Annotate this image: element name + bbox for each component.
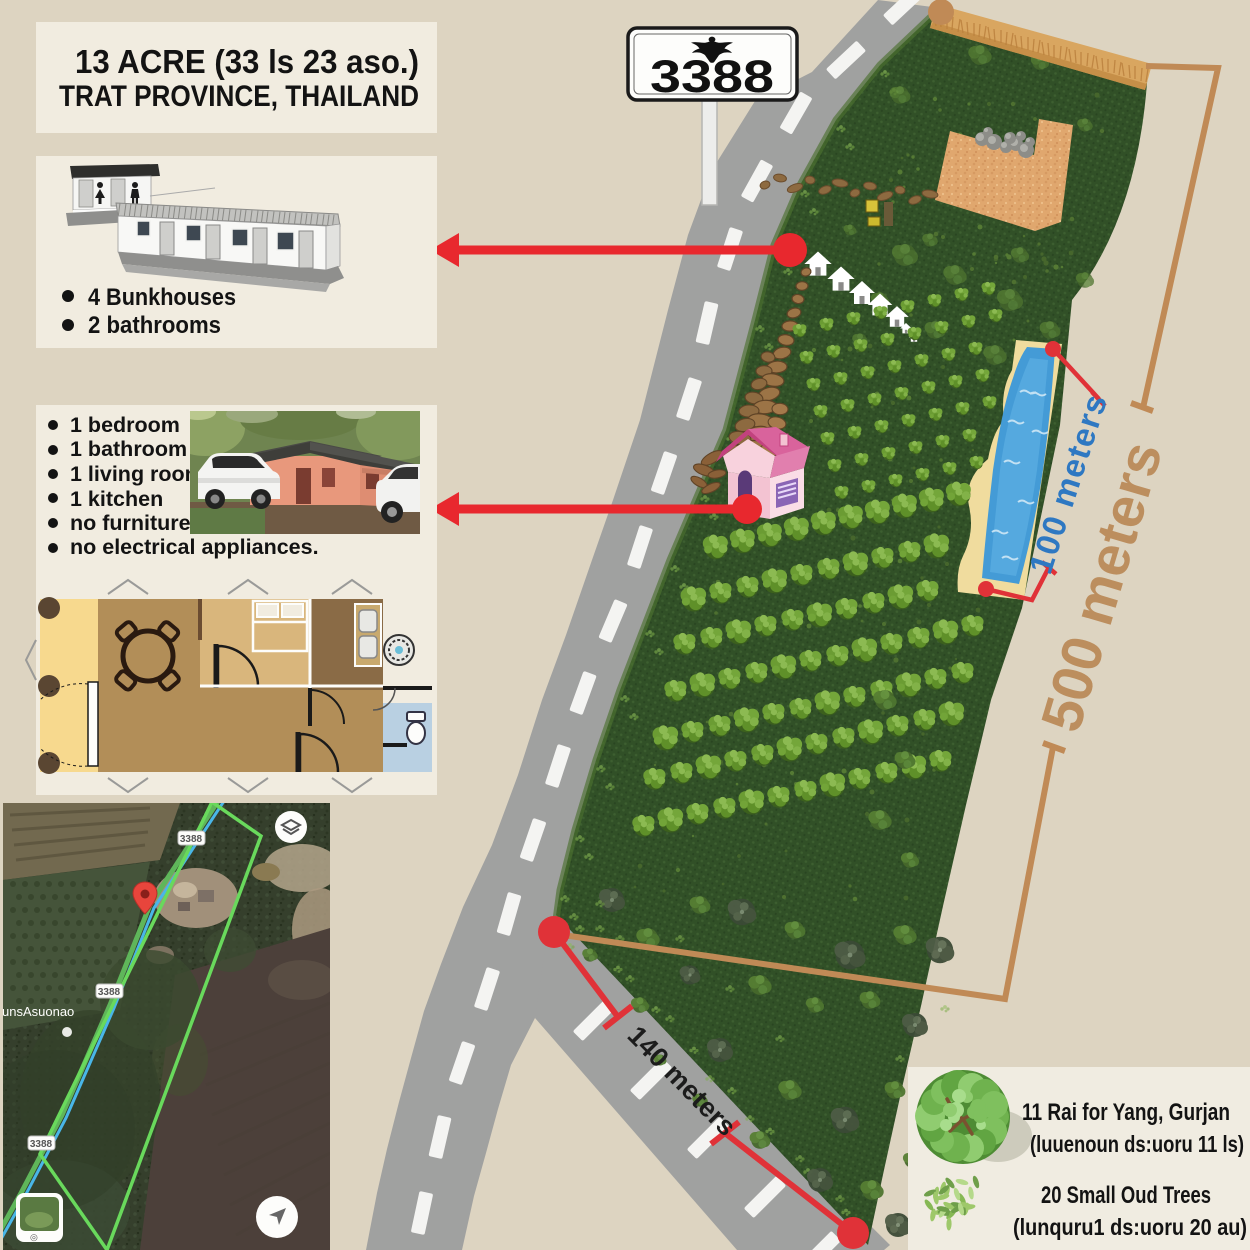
svg-text:no furniture: no furniture	[70, 511, 191, 535]
svg-text:3388: 3388	[30, 1139, 53, 1150]
svg-text:2 bathrooms: 2 bathrooms	[88, 312, 221, 339]
svg-text:4 Bunkhouses: 4 Bunkhouses	[88, 284, 236, 311]
svg-text:no electrical appliances.: no electrical appliances.	[70, 535, 319, 559]
svg-text:◎: ◎	[30, 1232, 38, 1242]
svg-text:1 bathroom: 1 bathroom	[70, 437, 187, 461]
svg-text:11 Rai for Yang, Gurjan: 11 Rai for Yang, Gurjan	[1022, 1099, 1230, 1126]
svg-text:1 living room: 1 living room	[70, 462, 204, 486]
svg-text:(luuenoun ds:uoru 11 ls): (luuenoun ds:uoru 11 ls)	[1030, 1131, 1244, 1157]
svg-text:3388: 3388	[180, 834, 203, 845]
svg-text:unsAsuonao: unsAsuonao	[2, 1004, 74, 1019]
svg-text:20 Small Oud Trees: 20 Small Oud Trees	[1041, 1182, 1211, 1209]
svg-text:1 kitchen: 1 kitchen	[70, 487, 163, 511]
svg-text:3388: 3388	[98, 987, 121, 998]
svg-text:TRAT PROVINCE, THAILAND: TRAT PROVINCE, THAILAND	[59, 80, 419, 113]
svg-text:13 ACRE (33 ls 23 aso.): 13 ACRE (33 ls 23 aso.)	[75, 43, 419, 80]
svg-text:(lunquru1 ds:uoru 20 au): (lunquru1 ds:uoru 20 au)	[1013, 1214, 1247, 1240]
svg-text:1 bedroom: 1 bedroom	[70, 413, 180, 437]
svg-text:3388: 3388	[650, 51, 774, 102]
